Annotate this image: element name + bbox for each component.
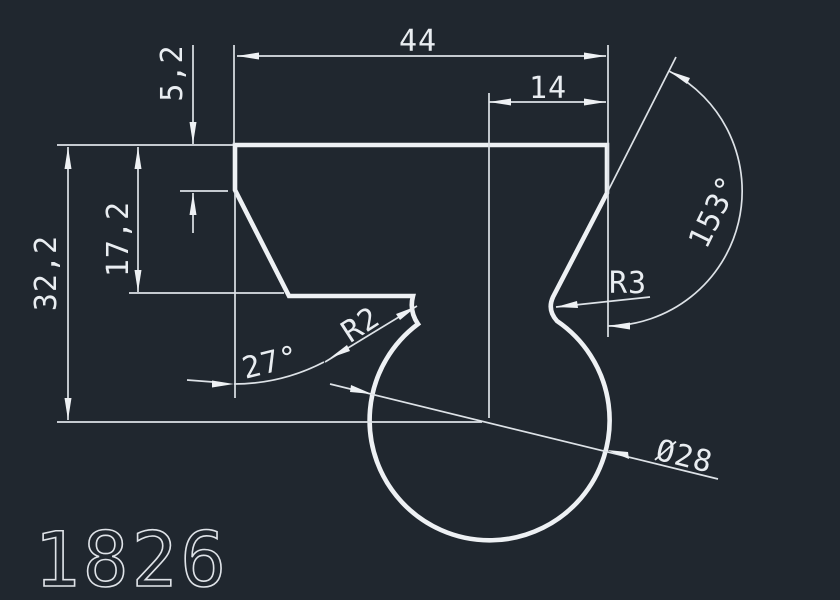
cad-drawing-canvas: 44 14 5,2 17,2 32,2 27° R2 R3 153° Ø28 1… bbox=[0, 0, 840, 600]
arrow-153-bottom bbox=[608, 323, 630, 330]
dim-label-14: 14 bbox=[529, 71, 567, 106]
dim-label-153deg: 153° bbox=[682, 170, 747, 254]
arrow-dia28-right bbox=[607, 450, 629, 459]
part-number-label: 1826 bbox=[34, 515, 229, 600]
arrowheads bbox=[65, 53, 691, 460]
dim-label-dia28: Ø28 bbox=[652, 433, 716, 481]
cad-viewport: 44 14 5,2 17,2 32,2 27° R2 R3 153° Ø28 1… bbox=[0, 0, 840, 600]
arrow-17-2-top bbox=[135, 147, 142, 169]
arrow-5-2-bottom bbox=[190, 193, 197, 215]
arrow-14-right bbox=[584, 99, 606, 106]
arrow-153-top bbox=[669, 71, 690, 84]
arrow-r3-leader bbox=[556, 301, 578, 308]
dim-label-32-2: 32,2 bbox=[29, 235, 64, 311]
dim-label-27deg: 27° bbox=[239, 339, 303, 387]
arrow-32-2-bottom bbox=[65, 398, 72, 420]
dim-label-r2: R2 bbox=[335, 300, 386, 350]
arrow-dia28-left bbox=[350, 385, 372, 394]
dimension-texts: 44 14 5,2 17,2 32,2 27° R2 R3 153° Ø28 bbox=[29, 24, 747, 481]
dim-label-44: 44 bbox=[399, 24, 437, 59]
arrow-44-left bbox=[237, 53, 259, 60]
dimension-lines bbox=[68, 45, 742, 479]
dim-label-5-2: 5,2 bbox=[155, 44, 190, 101]
arrow-27-near bbox=[212, 381, 234, 388]
arrow-32-2-top bbox=[65, 147, 72, 169]
ext-line-chamfer-extension bbox=[607, 57, 676, 193]
arrow-5-2-top bbox=[190, 122, 197, 144]
arrow-14-left bbox=[489, 99, 511, 106]
dim-label-r3: R3 bbox=[609, 266, 647, 301]
dim-label-17-2: 17,2 bbox=[101, 201, 136, 277]
dim-tail-27 bbox=[187, 380, 213, 382]
arrow-44-right bbox=[584, 53, 606, 60]
arrow-27-far bbox=[330, 345, 350, 358]
